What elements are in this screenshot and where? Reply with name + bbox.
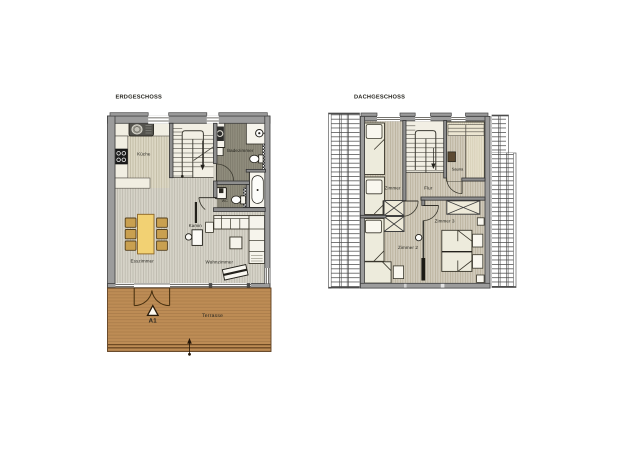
svg-text:Zimmer 2: Zimmer 2 [398, 245, 418, 250]
svg-text:DACHGESCHOSS: DACHGESCHOSS [354, 95, 405, 101]
svg-text:Küche: Küche [137, 152, 151, 157]
svg-text:Badezimmer: Badezimmer [227, 148, 254, 153]
svg-text:Sauna: Sauna [452, 167, 464, 172]
svg-text:ERDGESCHOSS: ERDGESCHOSS [116, 95, 162, 101]
svg-text:Zimmer 1: Zimmer 1 [385, 186, 405, 191]
svg-text:A1: A1 [149, 317, 158, 324]
svg-text:Kamin: Kamin [189, 223, 203, 228]
svg-text:WC: WC [222, 199, 228, 203]
svg-text:Esszimmer: Esszimmer [131, 258, 155, 263]
svg-text:Wohnzimmer: Wohnzimmer [205, 260, 233, 265]
svg-text:Flur: Flur [424, 186, 433, 191]
svg-text:Terrasse: Terrasse [202, 313, 223, 319]
svg-text:Zimmer 3: Zimmer 3 [435, 219, 455, 224]
